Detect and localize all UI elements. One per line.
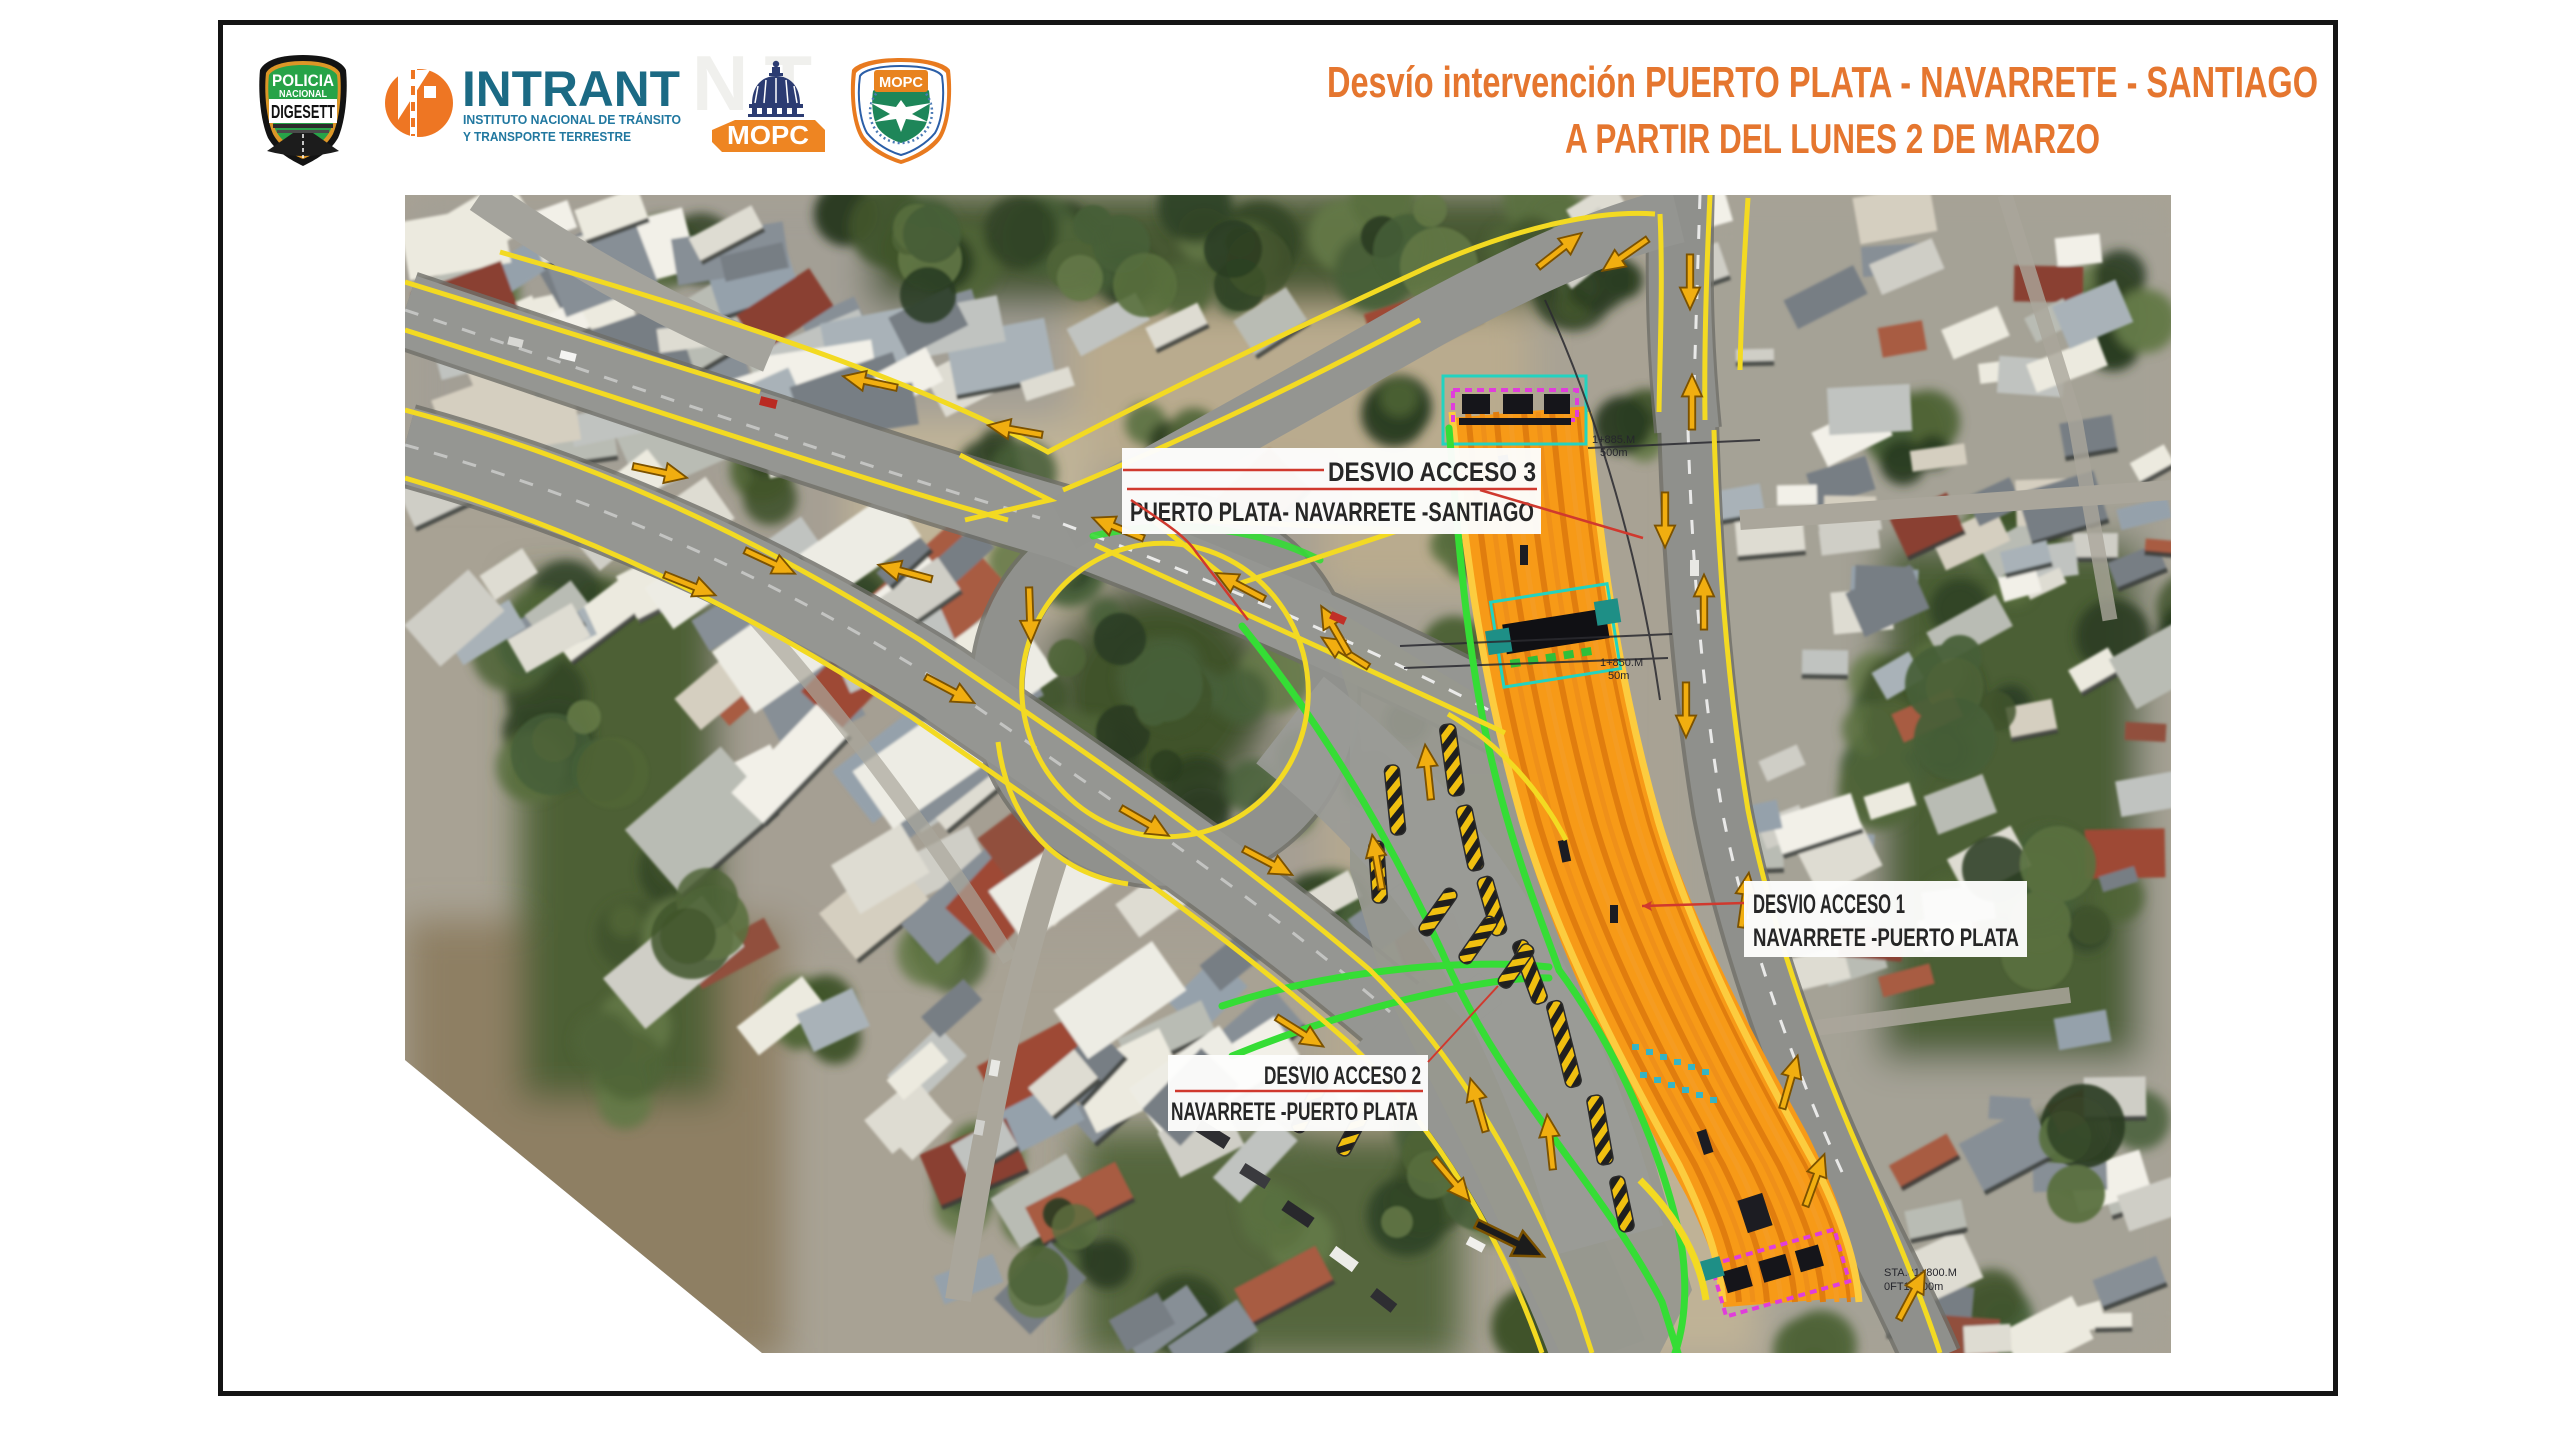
svg-text:DESVIO ACCESO 2: DESVIO ACCESO 2	[1264, 1062, 1421, 1090]
svg-text:DESVIO ACCESO 1: DESVIO ACCESO 1	[1753, 889, 1905, 919]
svg-text:1+850.M: 1+850.M	[1600, 657, 1643, 669]
svg-text:50m: 50m	[1608, 670, 1629, 682]
svg-text:A PARTIR DEL LUNES 2 DE MARZO: A PARTIR DEL LUNES 2 DE MARZO	[1565, 115, 2100, 162]
svg-text:POLICIA: POLICIA	[272, 71, 334, 90]
svg-text:Desvío intervención PUERTO PLA: Desvío intervención PUERTO PLATA - NAVAR…	[1327, 58, 2318, 107]
svg-text:DIGESETT: DIGESETT	[271, 102, 335, 122]
svg-text:MOPC: MOPC	[727, 120, 809, 150]
svg-text:NAVARRETE -PUERTO PLATA: NAVARRETE -PUERTO PLATA	[1171, 1098, 1418, 1126]
svg-text:DESVIO ACCESO 3: DESVIO ACCESO 3	[1328, 457, 1536, 487]
svg-text:INSTITUTO NACIONAL DE TRÁNSITO: INSTITUTO NACIONAL DE TRÁNSITO	[463, 112, 681, 127]
svg-text:500m: 500m	[1600, 447, 1628, 459]
svg-text:1+885.M: 1+885.M	[1592, 434, 1635, 446]
svg-text:INTRANT: INTRANT	[462, 61, 680, 117]
svg-text:PUERTO PLATA- NAVARRETE -SANTI: PUERTO PLATA- NAVARRETE -SANTIAGO	[1130, 497, 1534, 527]
svg-text:NAVARRETE -PUERTO PLATA: NAVARRETE -PUERTO PLATA	[1753, 924, 2019, 952]
svg-text:NACIONAL: NACIONAL	[279, 89, 327, 100]
svg-text:MOPC: MOPC	[879, 74, 923, 91]
svg-text:Y TRANSPORTE TERRESTRE: Y TRANSPORTE TERRESTRE	[463, 129, 631, 144]
